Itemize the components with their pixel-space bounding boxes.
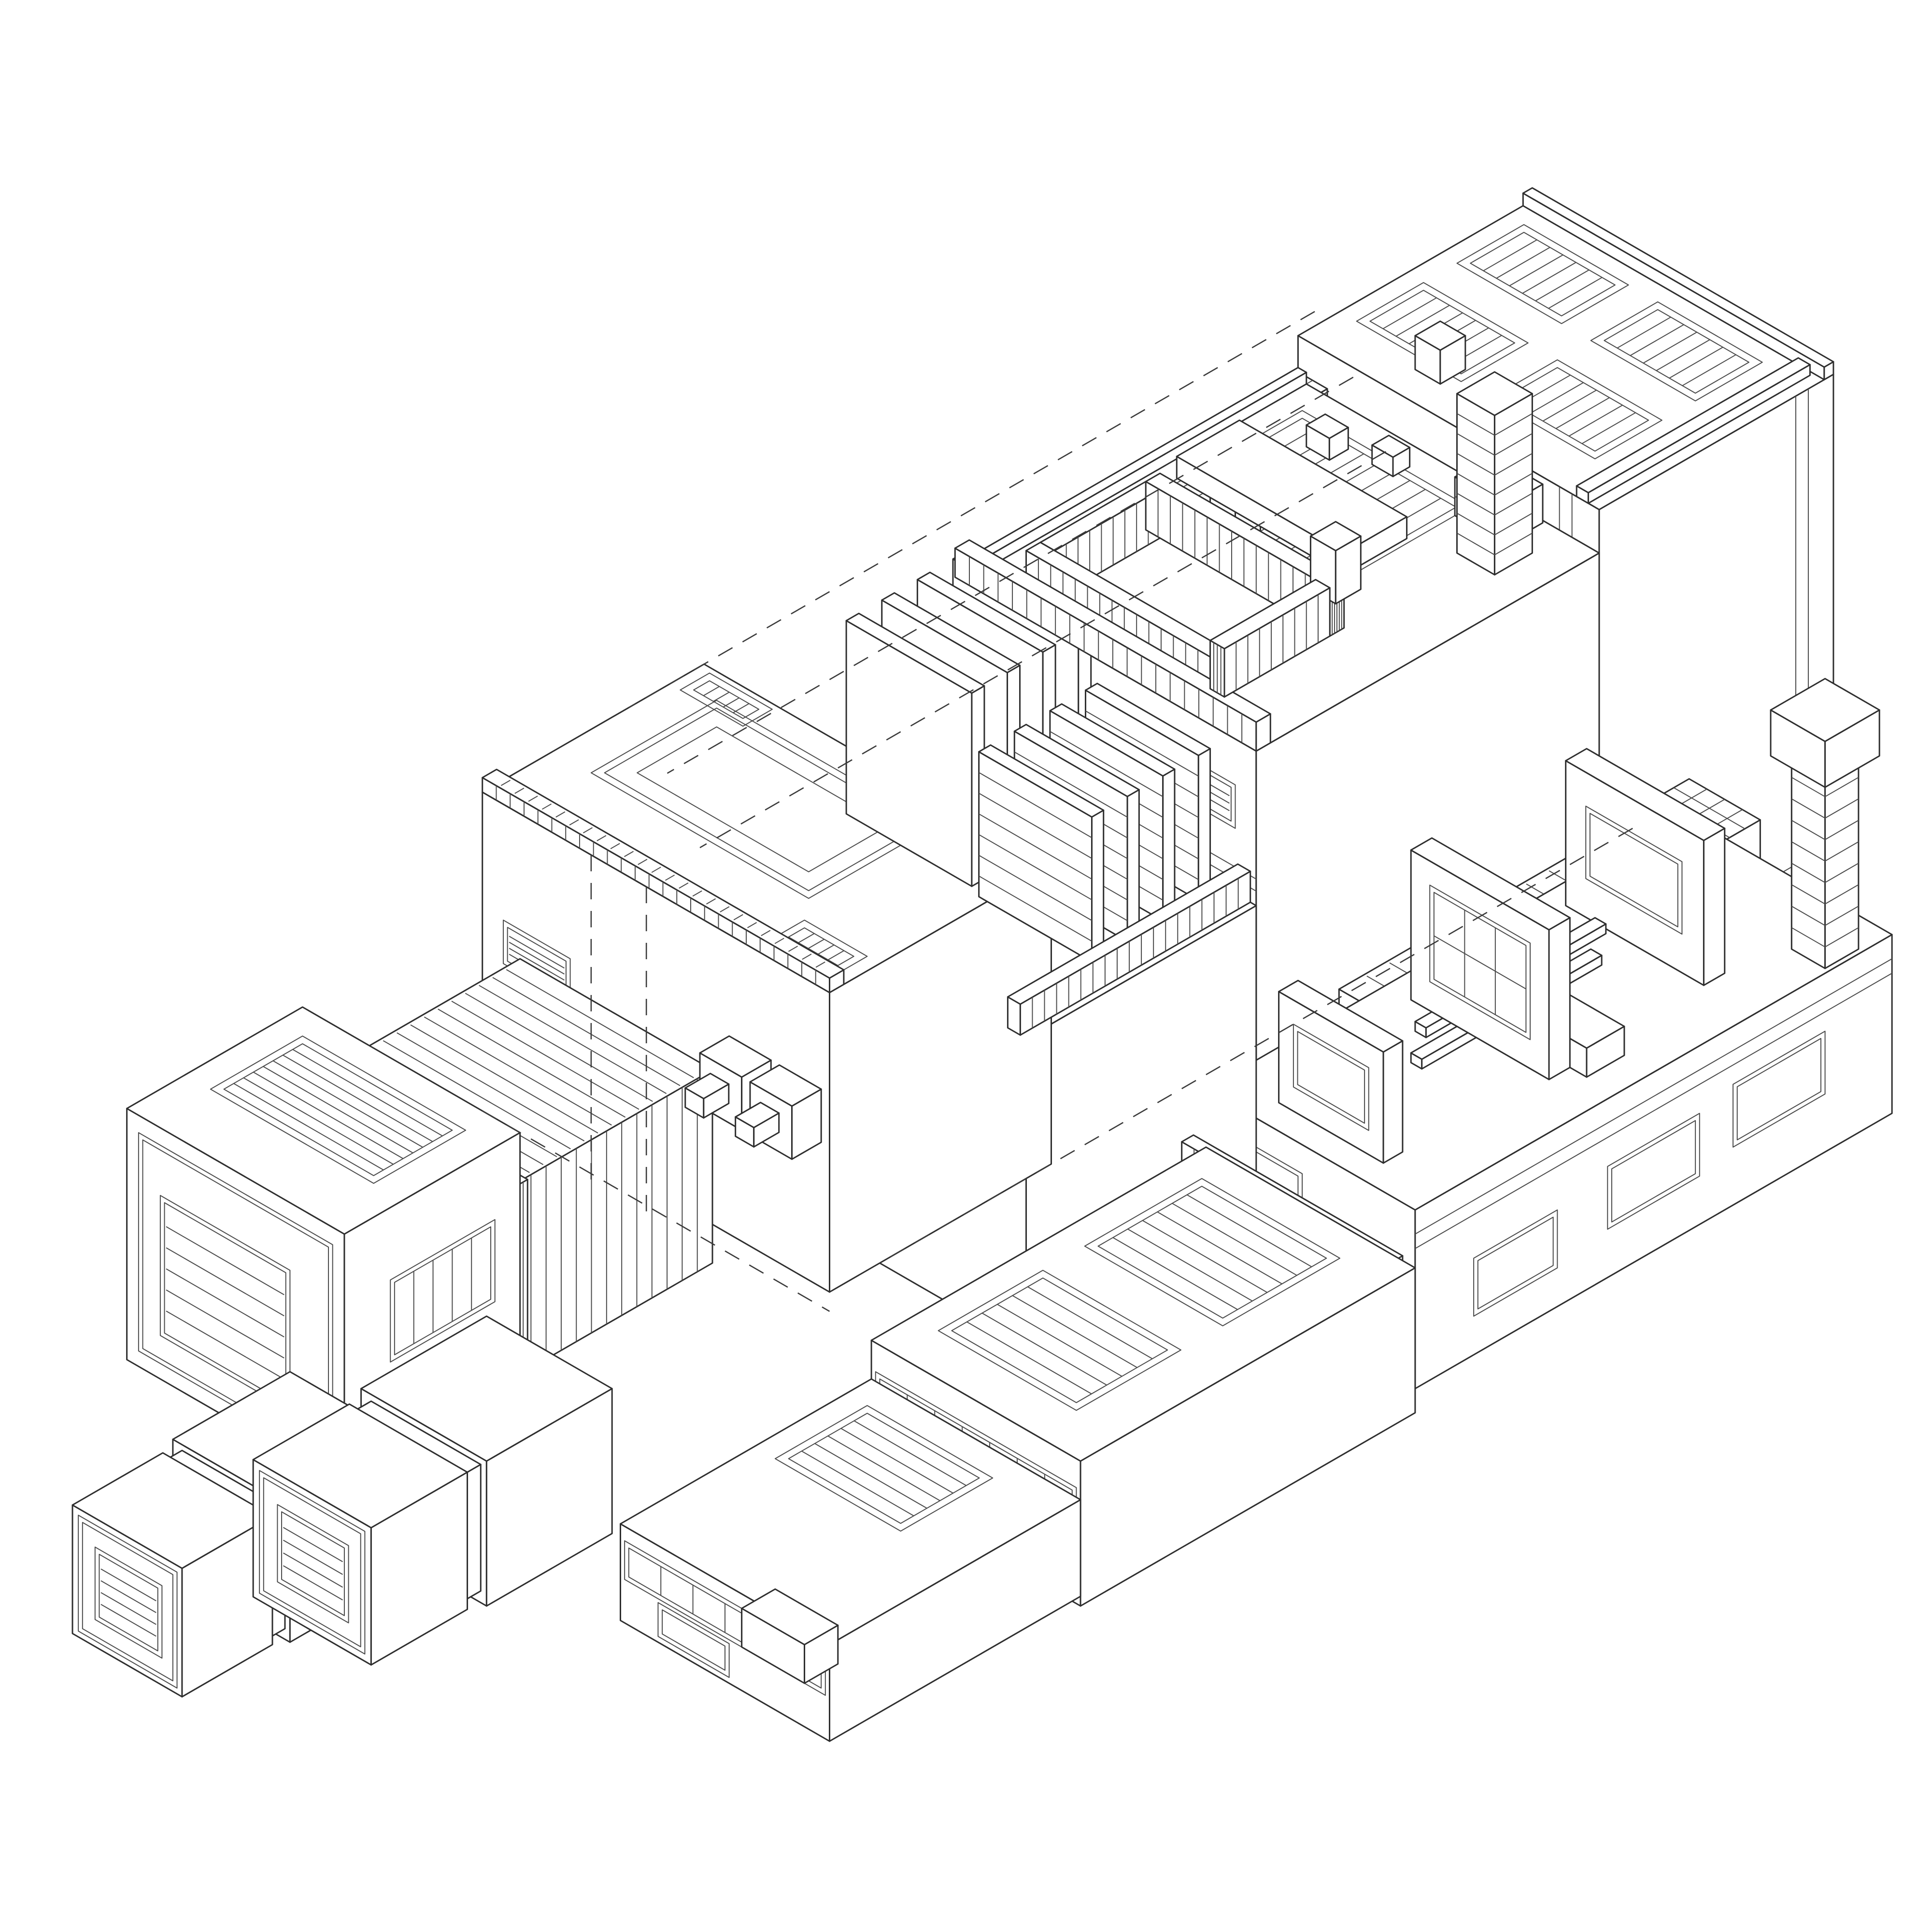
roof-vent	[1415, 321, 1465, 384]
drawing-svg	[0, 0, 1932, 1932]
isometric-axonometric-drawing	[0, 0, 1932, 1932]
striped-chimney	[1457, 372, 1533, 575]
